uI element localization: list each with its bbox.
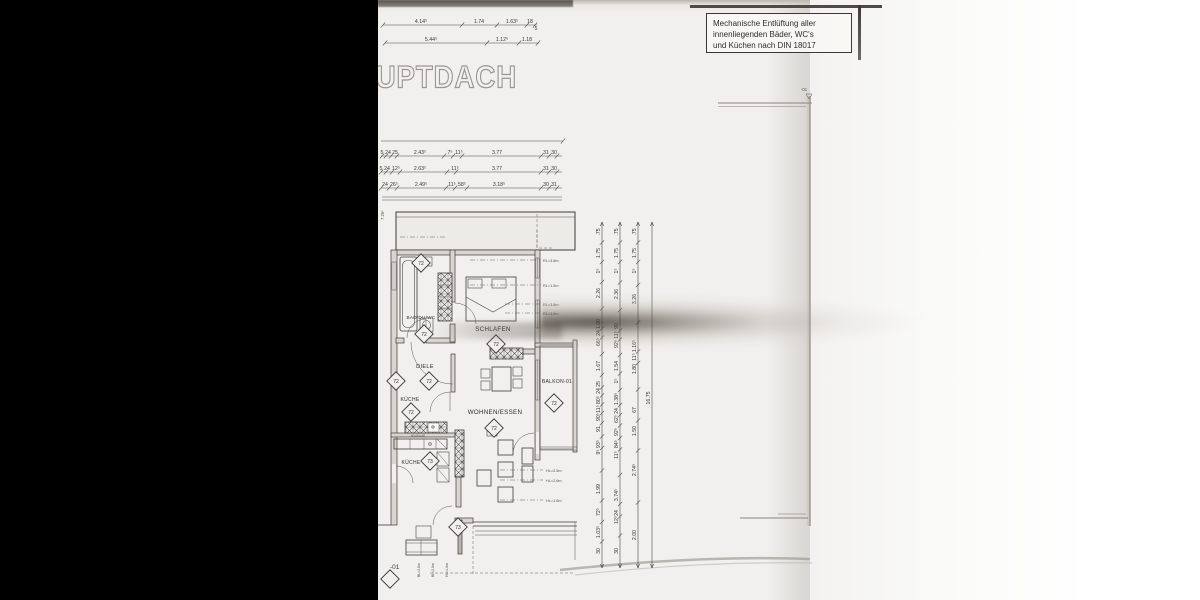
- dim-label: 5: [381, 150, 384, 156]
- dim-label: 90: [614, 323, 620, 329]
- dim-label: 11⁵: [596, 405, 602, 413]
- height-label-rotated: BL=2.8m: [431, 563, 435, 577]
- dim-label: 31: [551, 182, 557, 188]
- height-label: HL=1.6m: [546, 499, 562, 503]
- svg-text:73: 73: [427, 459, 433, 465]
- dim-label: 1.67: [596, 361, 602, 371]
- dining-table: [481, 367, 522, 391]
- dim-label: 2.26: [596, 288, 602, 298]
- dim-label: 30: [596, 548, 602, 554]
- dim-label: 2.43⁵: [414, 150, 426, 156]
- dim-label: 25: [392, 150, 398, 156]
- note-line: innenliegenden Bäder, WC's: [713, 29, 845, 40]
- dim-label: 1.75: [614, 248, 620, 258]
- scan-black-margin: [0, 0, 378, 600]
- dim-label: 3.26: [632, 294, 638, 304]
- dim-label: .75: [632, 228, 638, 235]
- dim-label: 1⁵: [614, 378, 620, 383]
- dim-label: 1.50: [632, 426, 638, 436]
- room-label-kueche1: KÜCHE: [400, 396, 419, 403]
- svg-text:-01: -01: [801, 87, 808, 92]
- dim-label: 1⁵: [632, 268, 638, 273]
- dim-label: 66⁵: [596, 338, 602, 346]
- dim-label: 24: [385, 150, 391, 156]
- window-bath: [392, 262, 396, 290]
- dim-label: 30: [551, 166, 557, 172]
- bed: [466, 260, 541, 321]
- dim-label: 5: [535, 26, 538, 32]
- unit-marker: 72: [387, 372, 405, 390]
- dim-label: 93⁵: [596, 440, 602, 448]
- dim-label: 1.75: [632, 248, 638, 258]
- svg-text:72: 72: [493, 342, 499, 348]
- level-label: -01: [390, 564, 400, 571]
- dim-label: 1.16⁵: [632, 340, 638, 352]
- dim-label: 1.12⁵: [496, 37, 508, 43]
- dim-label: 1.03⁵: [596, 526, 602, 538]
- counter-dims: 60=60=60: [411, 434, 426, 438]
- roof-band: [382, 197, 575, 250]
- dim-label: 2.36: [614, 289, 620, 299]
- unit-marker-empty: [381, 570, 399, 588]
- room-label-balkon: BALKON-01: [542, 379, 572, 385]
- height-label: RL=3.8m: [543, 259, 559, 263]
- dim-label: 18: [527, 19, 533, 25]
- balcony-upper: [540, 340, 577, 452]
- dim-label: 4.14⁵: [415, 19, 427, 25]
- unit-marker: 73: [421, 452, 439, 470]
- dim-label: 2.49⁵: [415, 182, 427, 188]
- unit-marker: 72: [402, 403, 420, 421]
- dim-label: 72⁵: [596, 508, 602, 516]
- dim-label: 1.00: [596, 319, 602, 329]
- dim-label: 84⁵: [614, 440, 620, 448]
- dim-label: 1⁵: [596, 268, 602, 273]
- dim-label: 3.77: [492, 166, 502, 172]
- room-label-kueche2: KÜCHE: [401, 459, 420, 466]
- left-edge-dim: 7.26⁵: [380, 210, 385, 220]
- unit-marker: 72: [420, 372, 438, 390]
- dim-label: 31: [543, 150, 549, 156]
- dim-label: 30: [614, 548, 620, 554]
- dim-label: 24: [614, 408, 620, 414]
- room-label-schlafen: SCHLAFEN: [475, 326, 510, 333]
- dim-label: 91: [596, 426, 602, 432]
- dim-label: 1.18: [522, 37, 532, 43]
- dim-label: 2.63⁵: [414, 166, 426, 172]
- adjacent-page-lines: [740, 514, 808, 518]
- height-label: RL=1.5m: [543, 284, 559, 288]
- scanned-floor-plan-page: HAUPTDACH: [0, 0, 1200, 600]
- window-bedroom: [536, 258, 539, 278]
- dim-label: 1.80: [632, 364, 638, 374]
- dim-label: 5: [380, 166, 383, 172]
- dim-label: 1.99: [596, 484, 602, 494]
- ventilation-note-box: Mechanische Entlüftung aller innenliegen…: [706, 13, 852, 53]
- dim-label: 92⁵: [614, 340, 620, 348]
- dim-label: 9⁵: [596, 449, 602, 454]
- note-line: Mechanische Entlüftung aller: [713, 18, 845, 29]
- dim-label: 12⁵: [392, 166, 400, 172]
- height-label: RL=3.8m: [543, 303, 559, 307]
- dim-label: 25: [596, 381, 602, 387]
- unit-marker: 72: [485, 419, 503, 437]
- height-label: RL=3.8m: [543, 312, 559, 316]
- dim-label: 5.44⁵: [425, 37, 437, 43]
- dim-label: 24: [614, 510, 620, 516]
- height-label: HL=2.6m: [546, 479, 562, 483]
- dim-label: 24: [596, 330, 602, 336]
- dim-label: 2.74⁵: [632, 464, 638, 476]
- window-wohnen: [536, 360, 539, 400]
- dim-label: 11⁵: [632, 353, 638, 361]
- dim-label: 3.74⁵: [614, 489, 620, 501]
- height-label-rotated: HL=1.6m: [445, 563, 449, 577]
- dim-label: 67: [632, 407, 638, 413]
- dim-label: 11⁵: [614, 451, 620, 459]
- height-label: HL=2.5m: [546, 469, 562, 473]
- dim-label: 58⁵: [458, 182, 466, 188]
- dim-label: 16.75: [646, 391, 652, 404]
- svg-text:72: 72: [551, 401, 557, 407]
- balcony-lower: [430, 522, 812, 575]
- svg-text:73: 73: [455, 525, 461, 531]
- dim-label: 1.38⁵: [614, 393, 620, 405]
- dim-label: 1.54: [614, 361, 620, 371]
- dim-label: 26⁵: [390, 182, 398, 188]
- svg-text:72: 72: [426, 379, 432, 385]
- svg-text:72: 72: [491, 426, 497, 432]
- bathroom-fixtures: [400, 257, 433, 338]
- dim-label: 30: [543, 182, 549, 188]
- height-label-rotated: BL=2.8m: [417, 563, 421, 577]
- room-label-diele: DIELE: [416, 364, 434, 370]
- svg-text:72: 72: [418, 261, 424, 267]
- dim-label: 11⁵: [455, 150, 463, 156]
- dim-label: 92⁵: [614, 428, 620, 436]
- dim-label: 11⁵: [451, 166, 459, 172]
- bottom-left-fixtures: [406, 526, 437, 555]
- svg-text:72: 72: [393, 379, 399, 385]
- dim-label: 24: [384, 166, 390, 172]
- dim-label: 1.63⁵: [506, 19, 518, 25]
- hatched-sections: [405, 273, 523, 477]
- dim-label: 3.77: [492, 150, 502, 156]
- dim-label: 3.18⁵: [493, 182, 505, 188]
- dim-label: 1.74: [474, 19, 484, 25]
- elevation-marker: -01: [718, 87, 812, 107]
- dim-label: .75: [614, 228, 620, 235]
- dim-label: 7⁵: [447, 150, 452, 156]
- dim-label: 30: [551, 150, 557, 156]
- note-line: und Küchen nach DIN 18017: [713, 40, 845, 51]
- dim-label: 1.75: [596, 248, 602, 258]
- svg-text:72: 72: [421, 332, 427, 338]
- dim-label: 80⁵: [596, 396, 602, 404]
- dim-label: 2.00: [632, 530, 638, 540]
- dim-label: 24: [382, 182, 388, 188]
- dim-label: .75: [596, 228, 602, 235]
- dim-label: 1⁵: [614, 268, 620, 273]
- room-label-bad: BAD/DU/WC: [407, 315, 436, 320]
- dim-label: 31: [543, 166, 549, 172]
- dim-label: 11⁵: [614, 331, 620, 339]
- unit-marker: 72: [545, 394, 563, 412]
- dim-label: 11⁵: [448, 182, 456, 188]
- room-label-wohnen: WOHNEN/ESSEN: [468, 409, 522, 416]
- sofa-group: [477, 429, 543, 502]
- svg-text:72: 72: [408, 410, 414, 416]
